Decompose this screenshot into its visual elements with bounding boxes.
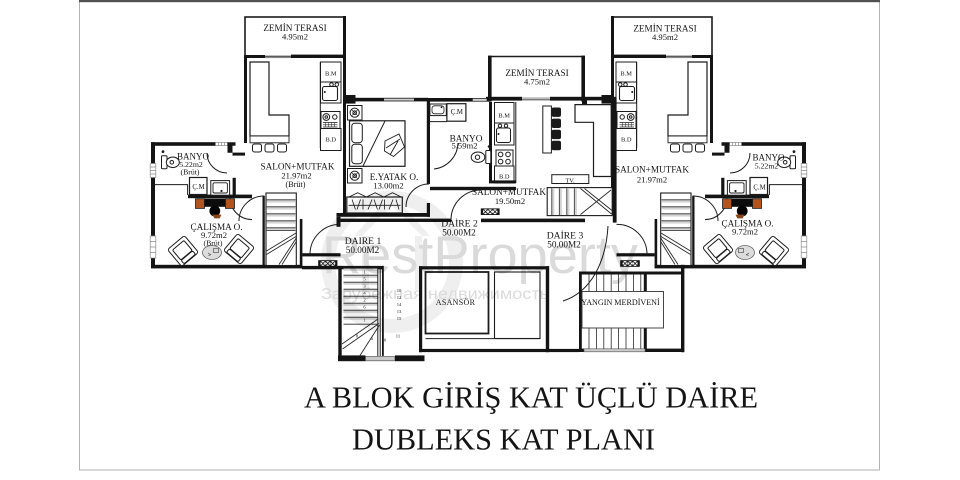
svg-text:B.D: B.D [621, 137, 632, 144]
svg-text:9.72m2: 9.72m2 [732, 227, 758, 237]
svg-text:5.59m2: 5.59m2 [451, 141, 477, 151]
svg-text:B.M: B.M [498, 113, 510, 120]
svg-text:SALON+MUTFAK: SALON+MUTFAK [615, 165, 689, 175]
svg-text:5.22m2: 5.22m2 [755, 162, 779, 171]
svg-text:DUBLEKS KAT PLANI: DUBLEKS KAT PLANI [352, 422, 655, 457]
svg-text:B.D: B.D [326, 137, 337, 144]
svg-text:B.M: B.M [620, 71, 632, 78]
svg-text:13.00m2: 13.00m2 [373, 181, 403, 191]
svg-text:Зарубежная недвижимость: Зарубежная недвижимость [321, 286, 549, 303]
svg-text:A BLOK GİRİŞ KAT ÜÇLÜ DAİRE: A BLOK GİRİŞ KAT ÜÇLÜ DAİRE [304, 380, 758, 415]
svg-text:19.50m2: 19.50m2 [495, 196, 525, 206]
svg-text:(Brüt): (Brüt) [203, 239, 222, 248]
svg-text:11: 11 [396, 334, 401, 339]
svg-text:YANGIN MERDİVENİ: YANGIN MERDİVENİ [581, 298, 660, 307]
svg-text:4.75m2: 4.75m2 [524, 77, 550, 87]
svg-text:21.97m2: 21.97m2 [281, 171, 311, 181]
svg-text:(Brüt): (Brüt) [285, 180, 305, 189]
svg-text:4.95m2: 4.95m2 [652, 32, 678, 42]
svg-text:10: 10 [382, 338, 387, 343]
svg-text:B.D: B.D [499, 174, 510, 181]
svg-text:TV.: TV. [565, 178, 575, 185]
svg-text:(Brüt): (Brüt) [180, 168, 199, 177]
svg-text:21.97m2: 21.97m2 [637, 175, 667, 185]
svg-text:Ç.M: Ç.M [753, 185, 765, 192]
svg-text:B.M: B.M [325, 71, 337, 78]
svg-text:Ç.M: Ç.M [451, 109, 463, 116]
svg-text:Ç.M: Ç.M [192, 184, 204, 191]
svg-text:RestProperty: RestProperty [322, 226, 639, 285]
svg-text:4.95m2: 4.95m2 [282, 32, 308, 42]
